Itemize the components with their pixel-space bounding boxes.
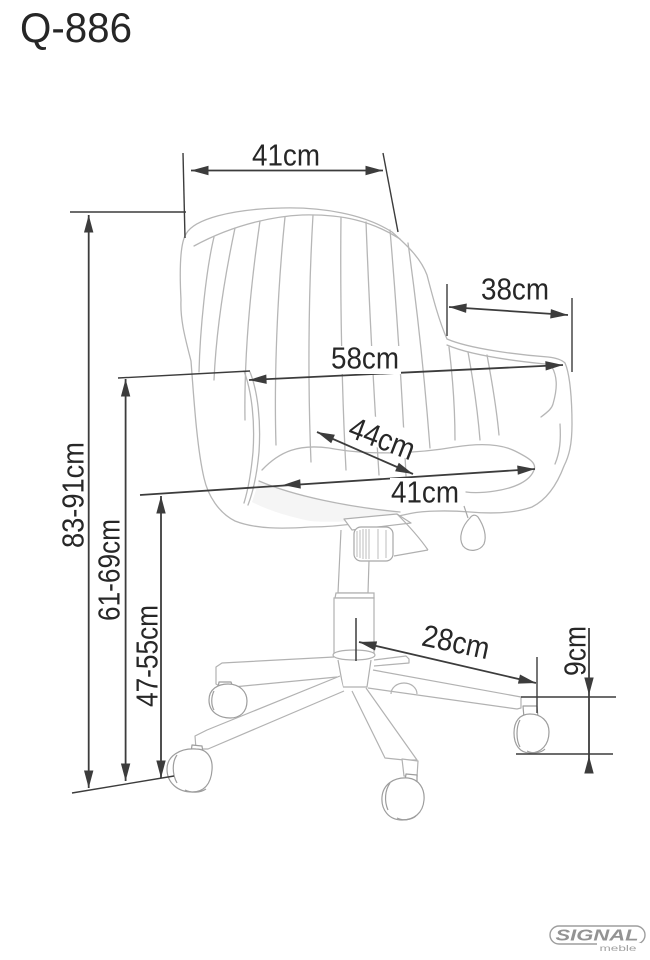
svg-text:41cm: 41cm	[391, 475, 459, 510]
svg-text:83-91cm: 83-91cm	[56, 442, 91, 548]
svg-text:SIGNAL: SIGNAL	[556, 928, 639, 945]
svg-text:38cm: 38cm	[481, 272, 549, 307]
svg-text:Q-886: Q-886	[20, 4, 132, 51]
svg-text:47-55cm: 47-55cm	[130, 605, 165, 707]
svg-text:meble: meble	[600, 944, 638, 953]
svg-text:61-69cm: 61-69cm	[92, 519, 127, 621]
svg-text:41cm: 41cm	[252, 138, 320, 173]
svg-text:58cm: 58cm	[331, 341, 399, 376]
svg-text:9cm: 9cm	[558, 626, 593, 676]
